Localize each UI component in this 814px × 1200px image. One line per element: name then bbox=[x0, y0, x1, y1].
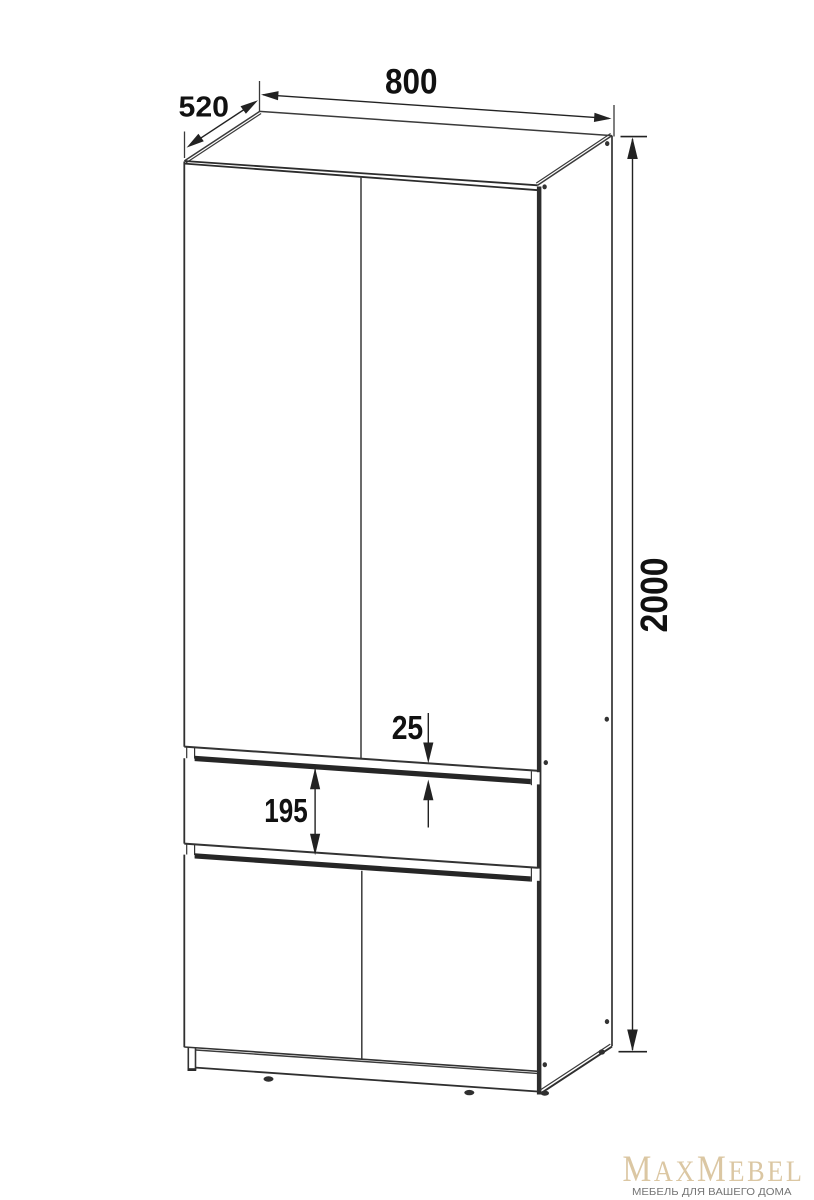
svg-text:25: 25 bbox=[392, 709, 424, 746]
svg-text:800: 800 bbox=[385, 62, 438, 101]
svg-text:2000: 2000 bbox=[634, 558, 676, 633]
svg-text:МЕБЕЛЬ ДЛЯ ВАШЕГО ДОМА: МЕБЕЛЬ ДЛЯ ВАШЕГО ДОМА bbox=[632, 1187, 792, 1198]
svg-text:520: 520 bbox=[179, 91, 230, 123]
svg-text:195: 195 bbox=[264, 792, 308, 829]
